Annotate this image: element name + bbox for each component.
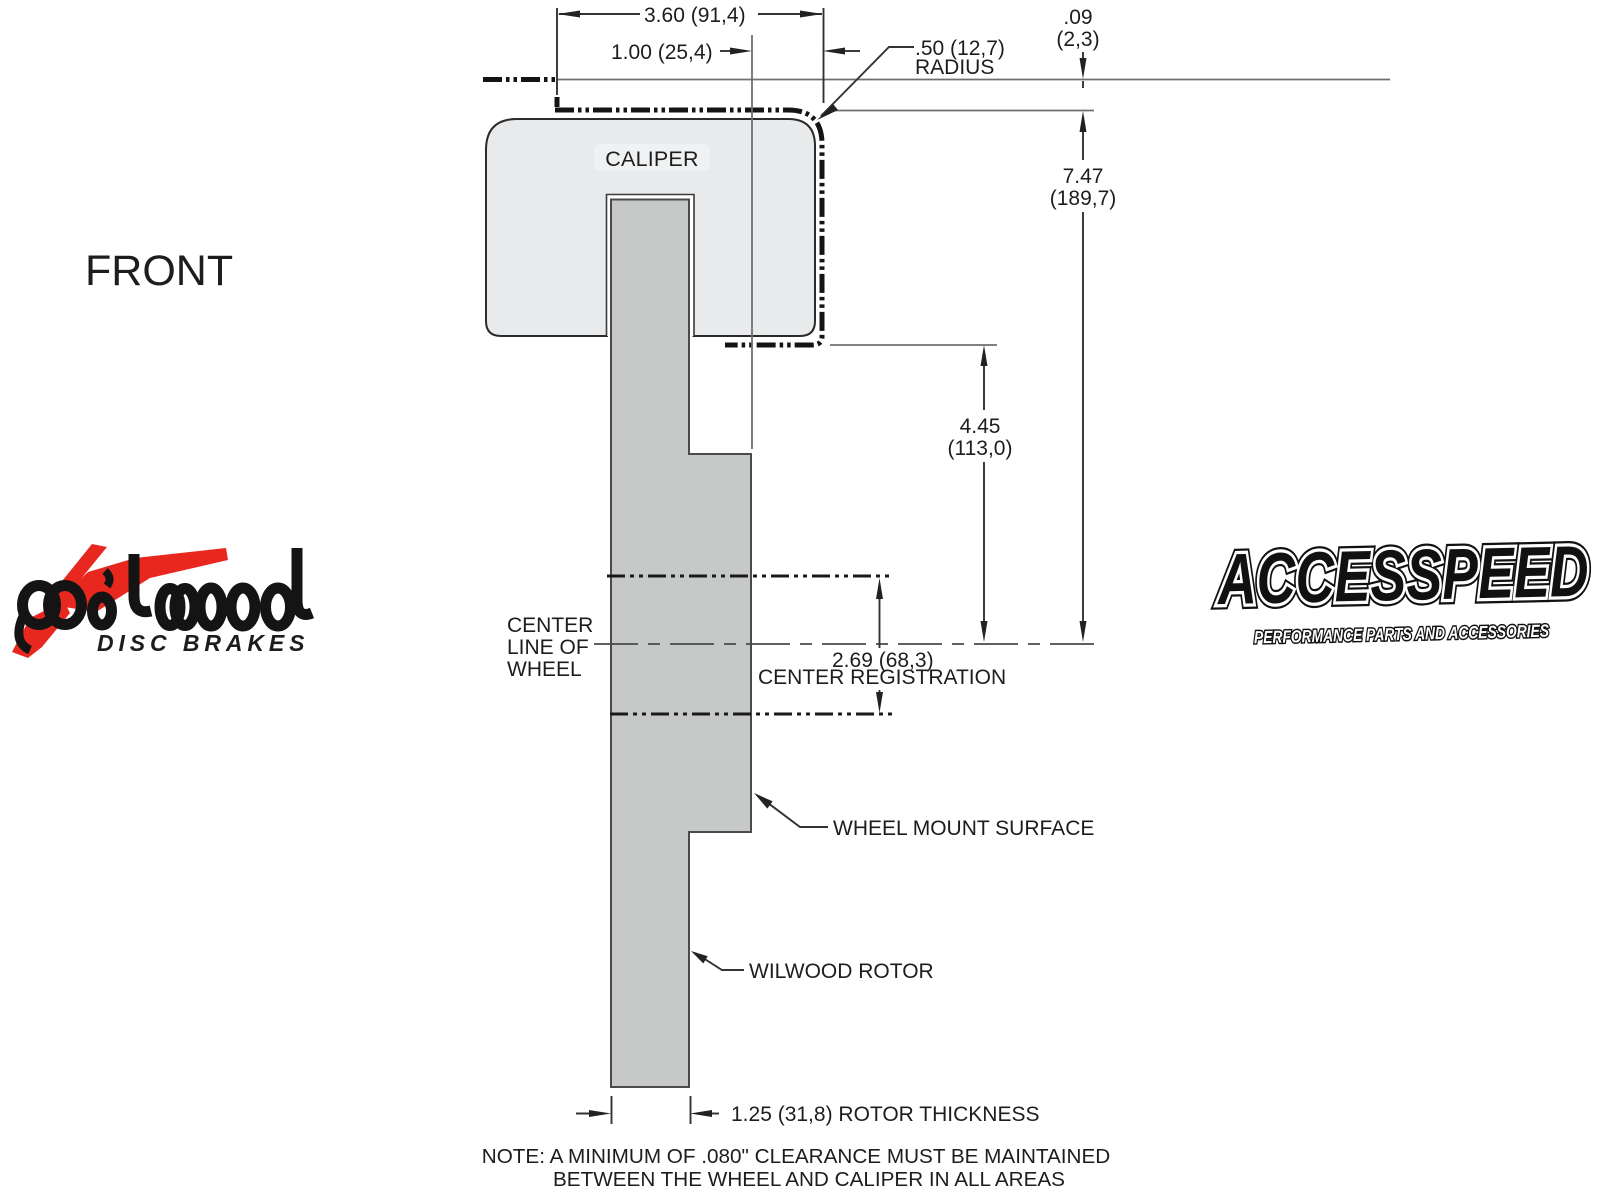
svg-text:WHEEL: WHEEL <box>507 658 582 681</box>
svg-text:.09: .09 <box>1063 6 1092 29</box>
svg-text:DISC BRAKES: DISC BRAKES <box>97 630 309 656</box>
svg-text:WILWOOD ROTOR: WILWOOD ROTOR <box>749 960 934 983</box>
svg-text:CENTER: CENTER <box>507 614 593 637</box>
svg-text:CENTER REGISTRATION: CENTER REGISTRATION <box>758 666 1006 689</box>
svg-text:FRONT: FRONT <box>85 247 233 295</box>
svg-text:(2,3): (2,3) <box>1056 28 1099 51</box>
svg-text:BETWEEN THE WHEEL AND CALIPER: BETWEEN THE WHEEL AND CALIPER IN ALL ARE… <box>553 1168 1065 1191</box>
svg-text:(189,7): (189,7) <box>1050 187 1117 210</box>
svg-text:1.00 (25,4): 1.00 (25,4) <box>611 41 713 64</box>
svg-text:LINE OF: LINE OF <box>507 636 589 659</box>
svg-text:NOTE: A MINIMUM OF .080" CLEAR: NOTE: A MINIMUM OF .080" CLEARANCE MUST … <box>482 1145 1110 1168</box>
svg-text:7.47: 7.47 <box>1063 165 1104 188</box>
svg-text:ACCESSPEED: ACCESSPEED <box>1215 532 1589 620</box>
svg-text:CALIPER: CALIPER <box>605 147 698 171</box>
svg-text:1.25 (31,8) ROTOR THICKNESS: 1.25 (31,8) ROTOR THICKNESS <box>731 1103 1040 1126</box>
svg-text:RADIUS: RADIUS <box>915 56 994 79</box>
svg-text:3.60 (91,4): 3.60 (91,4) <box>644 4 746 27</box>
svg-text:WHEEL MOUNT SURFACE: WHEEL MOUNT SURFACE <box>833 817 1094 840</box>
svg-text:(113,0): (113,0) <box>948 437 1013 460</box>
svg-text:4.45: 4.45 <box>960 415 1001 438</box>
